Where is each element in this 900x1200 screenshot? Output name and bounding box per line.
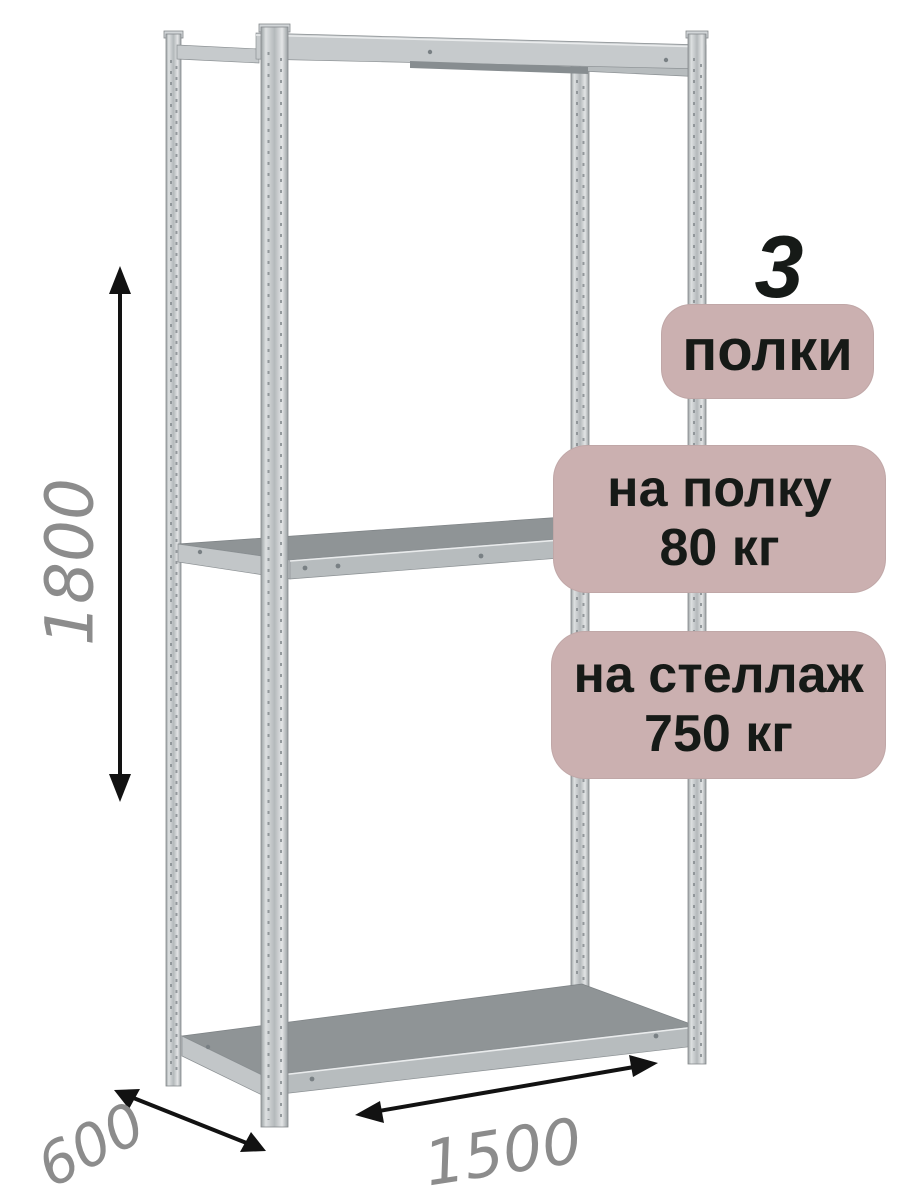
rack-load-badge: на стеллаж 750 кг (551, 631, 886, 779)
top-shelf (177, 33, 706, 77)
rack-illustration (0, 0, 900, 1200)
shelf-load-badge: на полку 80 кг (553, 445, 886, 593)
shelf-load-line2: 80 кг (660, 519, 780, 578)
height-dimension-label: 1800 (32, 478, 109, 646)
shelf-load-line1: на полку (607, 460, 832, 519)
rack-load-line1: на стеллаж (574, 646, 864, 705)
height-arrow (109, 266, 131, 802)
shelf-count-number: 3 (755, 216, 804, 318)
product-image: 1800 600 1500 3 полки на полку 80 кг на … (0, 0, 900, 1200)
shelf-count-badge: полки (661, 304, 874, 399)
rack-load-line2: 750 кг (644, 705, 793, 764)
shelf-count-label: полки (682, 318, 853, 384)
rack-post-front-left (259, 24, 290, 1127)
bottom-shelf (182, 984, 696, 1096)
